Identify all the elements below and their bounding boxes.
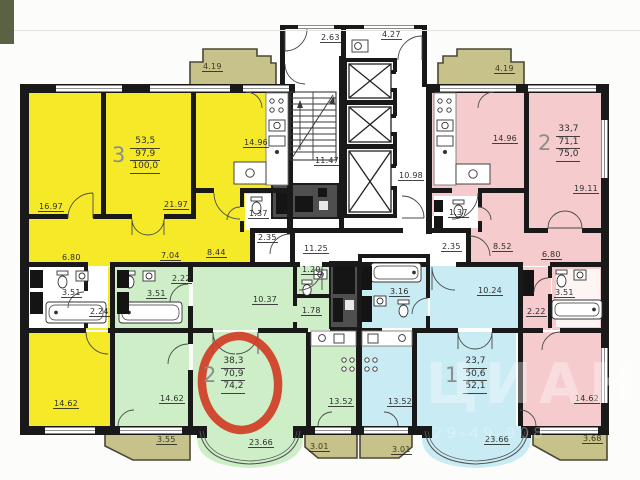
apartment-label-yellow: 3 53,5 97,9 100,0 (112, 136, 160, 174)
dim-balcony-top-left: 4.19 (202, 63, 223, 72)
dim-pink-corridor: 2.22 (526, 308, 547, 317)
dim-yellow-wc: 1.37 (248, 210, 269, 219)
dim-yellow-room3: 14.62 (53, 400, 79, 409)
elevator-shafts (349, 64, 396, 212)
dim-pink-wc: 1.37 (448, 209, 469, 218)
dim-yellow-hall3: 8.44 (206, 249, 227, 258)
dim-green-corridor: 1.78 (301, 307, 322, 316)
dim-yellow-kitchen: 14.96 (243, 139, 269, 148)
apartment-areas: 23,7 50,6 52,1 (463, 356, 487, 394)
apartment-areas: 38,3 70,9 74,2 (221, 356, 245, 394)
dim-yellow-room2: 21.97 (163, 201, 189, 210)
sink-icon (143, 271, 155, 281)
dim-green-corridor2: 2.22 (171, 275, 192, 284)
bathtub-icon (552, 300, 602, 319)
apartment-label-cyan: 1 23,7 50,6 52,1 (445, 356, 487, 394)
apartment-number: 3 (112, 145, 125, 166)
apartment-number: 2 (203, 365, 216, 386)
apartment-label-pink: 2 33,7 71,1 75,0 (538, 124, 580, 162)
dim-lift-lobby: 10.98 (398, 172, 424, 181)
dim-cyan-kitchen: 13.52 (387, 398, 413, 407)
dim-pink-hall2: 6.80 (541, 251, 562, 260)
apartment-label-green: 2 38,3 70,9 74,2 (203, 356, 245, 394)
toilet-icon (57, 271, 68, 288)
dim-green-room1: 23.66 (248, 439, 274, 448)
dim-yellow-corridor: 2.24 (89, 308, 110, 317)
bathtub-icon (371, 263, 421, 282)
toilet-icon (556, 270, 567, 287)
dim-yellow-room1: 16.97 (38, 203, 64, 212)
dim-balcony-b1: 3.55 (156, 436, 177, 445)
lift-lobby-room (397, 88, 426, 232)
dim-balcony-b2: 3.01 (309, 443, 330, 452)
dim-yellow-bath: 3.51 (61, 289, 82, 298)
dim-tambour-right: 2.35 (441, 243, 462, 252)
floor-plan: 4.19 2.63 4.27 4.19 11.47 10.98 11.25 2.… (0, 0, 640, 480)
apartment-number: 1 (445, 365, 458, 386)
dim-yellow-hall1: 6.80 (61, 254, 82, 263)
dim-green-hall: 10.37 (252, 296, 278, 305)
apartment-areas: 33,7 71,1 75,0 (556, 124, 580, 162)
dim-pink-hall1: 8.52 (492, 243, 513, 252)
dim-cyan-hall: 10.24 (477, 287, 503, 296)
dim-cyan-room: 23.66 (484, 436, 510, 445)
dim-pink-room1: 19.11 (573, 185, 599, 194)
dim-balcony-b4: 3.68 (582, 435, 603, 444)
dim-yellow-hall2: 7.04 (160, 252, 181, 261)
dim-green-wc: 1.20 (301, 266, 322, 275)
sink-icon (352, 40, 368, 52)
dim-green-bath: 3.51 (146, 290, 167, 299)
dim-pink-kitchen: 14.96 (492, 135, 518, 144)
apartment-number: 2 (538, 133, 551, 154)
photo-seam-line (0, 30, 640, 31)
dim-balcony-top-right: 4.19 (494, 65, 515, 74)
photo-edge-artifact (0, 0, 14, 44)
floor-plan-drawing (0, 0, 640, 480)
dim-green-kitchen: 13.52 (328, 398, 354, 407)
sink-icon (574, 270, 586, 280)
sink-icon (374, 296, 386, 306)
dim-balcony-b3: 3.01 (391, 446, 412, 455)
sink-icon (76, 271, 88, 281)
dim-vestibule: 2.63 (320, 34, 341, 43)
apartment-areas: 53,5 97,9 100,0 (130, 136, 160, 174)
dim-pink-room2: 14.62 (574, 395, 600, 404)
toilet-icon (302, 280, 312, 296)
dim-cyan-bath: 3.16 (389, 288, 410, 297)
dim-pink-bath: 3.51 (554, 289, 575, 298)
toilet-icon (398, 300, 409, 317)
dim-stairwell: 11.47 (314, 157, 340, 166)
dim-refuse-room: 4.27 (381, 31, 402, 40)
dim-corridor: 11.25 (303, 245, 329, 254)
dim-green-room2: 14.62 (159, 395, 185, 404)
dim-tambour-left: 2.35 (257, 234, 278, 243)
